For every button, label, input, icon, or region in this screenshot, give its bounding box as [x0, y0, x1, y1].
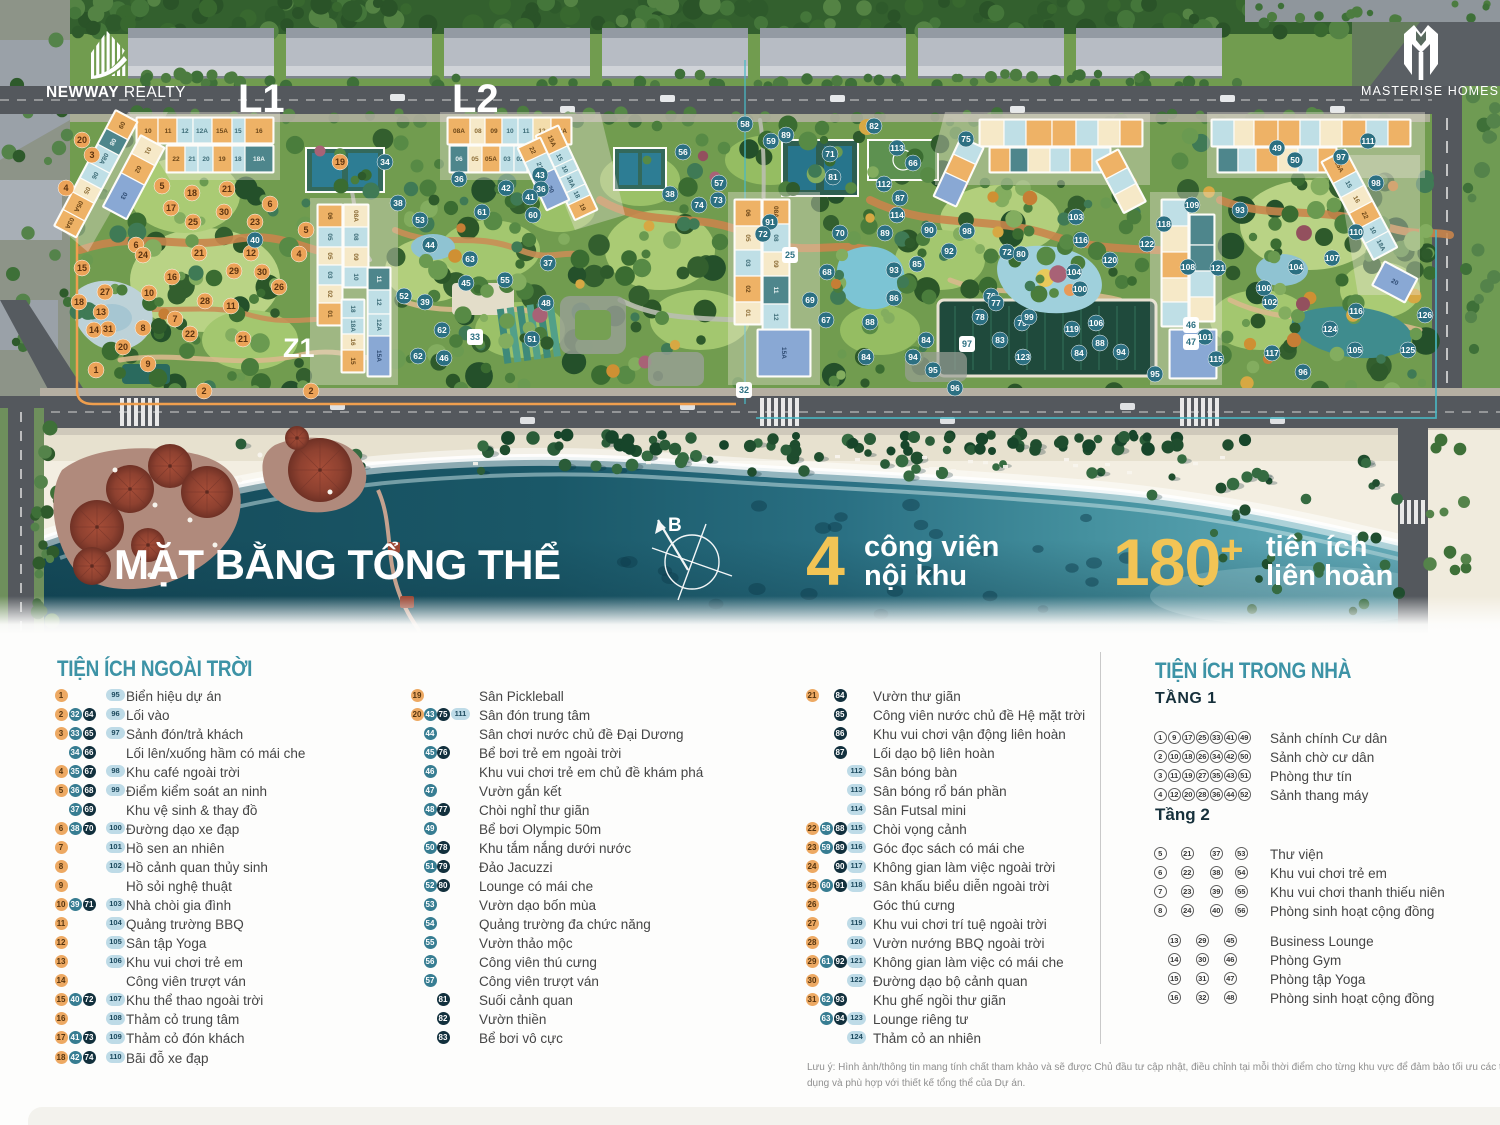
svg-text:12A: 12A [375, 319, 382, 331]
svg-text:95: 95 [1150, 369, 1160, 379]
svg-text:46: 46 [1186, 320, 1196, 330]
svg-text:46: 46 [439, 353, 449, 363]
svg-text:97: 97 [962, 339, 972, 349]
svg-text:57: 57 [714, 178, 724, 188]
svg-text:25: 25 [188, 217, 198, 227]
svg-text:03: 03 [503, 156, 511, 163]
svg-text:7: 7 [172, 314, 177, 324]
svg-text:4: 4 [806, 522, 845, 600]
svg-text:4: 4 [296, 249, 301, 259]
svg-text:38: 38 [393, 198, 403, 208]
svg-text:85: 85 [912, 259, 922, 269]
svg-text:2: 2 [308, 386, 313, 396]
svg-text:116: 116 [1349, 306, 1363, 316]
svg-text:73: 73 [713, 195, 723, 205]
svg-text:36: 36 [454, 174, 464, 184]
svg-text:14: 14 [89, 325, 99, 335]
svg-text:53: 53 [415, 215, 425, 225]
svg-text:30: 30 [219, 207, 229, 217]
svg-text:15: 15 [77, 263, 87, 273]
svg-text:03: 03 [326, 271, 333, 279]
svg-text:17: 17 [166, 203, 176, 213]
svg-text:49: 49 [1272, 143, 1282, 153]
svg-text:58: 58 [740, 119, 750, 129]
svg-text:22: 22 [172, 156, 180, 163]
svg-text:1: 1 [93, 365, 98, 375]
svg-text:18A: 18A [349, 320, 356, 332]
svg-text:03: 03 [744, 259, 751, 267]
svg-text:96: 96 [1298, 367, 1308, 377]
svg-text:11: 11 [523, 128, 530, 135]
svg-text:09: 09 [490, 128, 498, 135]
svg-text:72: 72 [1002, 247, 1012, 257]
svg-text:05: 05 [326, 252, 333, 260]
svg-text:37: 37 [543, 258, 553, 268]
svg-text:21: 21 [238, 334, 248, 344]
svg-text:Z1: Z1 [283, 333, 315, 363]
svg-text:60: 60 [528, 210, 538, 220]
svg-text:110: 110 [1349, 227, 1363, 237]
svg-text:70: 70 [835, 228, 845, 238]
svg-text:16: 16 [349, 338, 356, 346]
svg-text:118: 118 [1157, 219, 1171, 229]
svg-text:18: 18 [349, 305, 356, 313]
svg-text:05: 05 [744, 234, 751, 242]
svg-text:100: 100 [1073, 284, 1087, 294]
svg-text:59: 59 [766, 136, 776, 146]
svg-text:02: 02 [744, 285, 751, 293]
svg-text:119: 119 [1065, 324, 1079, 334]
svg-text:08: 08 [352, 233, 359, 241]
svg-text:32: 32 [739, 385, 749, 395]
svg-text:51: 51 [527, 334, 537, 344]
svg-text:56: 56 [678, 147, 688, 157]
svg-text:126: 126 [1418, 310, 1432, 320]
svg-text:108: 108 [1181, 262, 1195, 272]
svg-text:05: 05 [471, 156, 479, 163]
svg-text:01: 01 [326, 310, 333, 318]
svg-text:122: 122 [1140, 239, 1154, 249]
svg-text:NEWWAY REALTY: NEWWAY REALTY [46, 84, 186, 101]
svg-text:05: 05 [326, 233, 333, 241]
svg-text:08: 08 [474, 128, 482, 135]
svg-text:19: 19 [218, 156, 226, 163]
svg-text:MẶT BẰNG TỔNG THỂ: MẶT BẰNG TỔNG THỂ [114, 539, 560, 588]
svg-text:12: 12 [772, 313, 779, 321]
svg-text:06: 06 [455, 156, 463, 163]
svg-text:10: 10 [144, 288, 154, 298]
svg-text:20: 20 [77, 135, 87, 145]
svg-text:93: 93 [1235, 205, 1245, 215]
svg-text:95: 95 [928, 365, 938, 375]
svg-text:20: 20 [118, 342, 128, 352]
svg-text:98: 98 [962, 226, 972, 236]
svg-text:01: 01 [744, 309, 751, 317]
svg-text:113: 113 [890, 143, 904, 153]
svg-text:25: 25 [785, 250, 795, 260]
svg-text:18: 18 [74, 297, 84, 307]
svg-text:101: 101 [1198, 332, 1212, 342]
svg-text:MASTERISE HOMES: MASTERISE HOMES [1361, 84, 1499, 98]
svg-text:55: 55 [500, 275, 510, 285]
svg-text:06: 06 [744, 209, 751, 217]
svg-text:26: 26 [274, 282, 284, 292]
svg-text:124: 124 [1323, 324, 1337, 334]
svg-text:89: 89 [880, 228, 890, 238]
svg-text:81: 81 [828, 172, 838, 182]
svg-text:15: 15 [234, 128, 242, 135]
svg-text:15A: 15A [780, 347, 787, 359]
svg-text:9: 9 [145, 359, 150, 369]
svg-text:34: 34 [380, 157, 390, 167]
svg-text:11: 11 [226, 301, 236, 311]
svg-text:115: 115 [1209, 354, 1223, 364]
svg-text:75: 75 [961, 134, 971, 144]
svg-text:5: 5 [159, 181, 164, 191]
svg-text:100: 100 [1257, 283, 1271, 293]
svg-text:84: 84 [1074, 348, 1084, 358]
svg-text:40: 40 [250, 235, 260, 245]
svg-text:98: 98 [1371, 178, 1381, 188]
svg-text:94: 94 [1116, 347, 1126, 357]
svg-text:31: 31 [103, 324, 113, 334]
svg-text:88: 88 [865, 317, 875, 327]
svg-text:nội khu: nội khu [864, 560, 967, 592]
svg-text:66: 66 [908, 158, 918, 168]
svg-text:05A: 05A [485, 156, 497, 163]
svg-text:114: 114 [890, 210, 904, 220]
svg-text:2: 2 [201, 386, 206, 396]
svg-text:08A: 08A [352, 210, 359, 222]
svg-text:69: 69 [805, 295, 815, 305]
svg-text:12: 12 [375, 298, 382, 306]
svg-text:18: 18 [187, 188, 197, 198]
svg-text:106: 106 [1089, 318, 1103, 328]
svg-text:82: 82 [869, 121, 879, 131]
svg-text:109: 109 [1185, 200, 1199, 210]
svg-text:86: 86 [889, 293, 899, 303]
svg-text:102: 102 [1263, 297, 1277, 307]
svg-text:12: 12 [181, 128, 189, 135]
svg-text:11: 11 [375, 276, 382, 283]
svg-text:103: 103 [1069, 212, 1083, 222]
svg-text:liên hoàn: liên hoàn [1266, 560, 1393, 592]
svg-text:33: 33 [470, 332, 480, 342]
svg-text:02: 02 [326, 290, 333, 298]
svg-text:39: 39 [420, 297, 430, 307]
svg-text:44: 44 [425, 240, 435, 250]
svg-text:50: 50 [1290, 155, 1300, 165]
svg-text:62: 62 [437, 325, 447, 335]
svg-text:8: 8 [140, 323, 145, 333]
svg-text:10: 10 [506, 128, 514, 135]
svg-text:94: 94 [908, 352, 918, 362]
svg-text:08A: 08A [453, 128, 465, 135]
svg-text:18A: 18A [253, 156, 265, 163]
svg-text:06: 06 [326, 212, 333, 220]
svg-text:63: 63 [465, 254, 475, 264]
svg-text:21: 21 [194, 248, 204, 258]
svg-text:61: 61 [477, 207, 487, 217]
svg-text:27: 27 [100, 287, 110, 297]
svg-text:16: 16 [167, 272, 177, 282]
svg-text:80: 80 [1016, 249, 1026, 259]
svg-text:L2: L2 [452, 77, 499, 121]
svg-text:96: 96 [950, 383, 960, 393]
svg-text:6: 6 [267, 199, 272, 209]
svg-text:tiên ích: tiên ích [1266, 531, 1368, 563]
svg-text:47: 47 [1186, 337, 1196, 347]
svg-text:5: 5 [303, 225, 308, 235]
svg-text:45: 45 [461, 278, 471, 288]
svg-text:120: 120 [1103, 255, 1117, 265]
svg-text:42: 42 [501, 183, 511, 193]
svg-text:104: 104 [1067, 267, 1081, 277]
svg-text:84: 84 [861, 352, 871, 362]
svg-text:24: 24 [138, 250, 148, 260]
svg-text:123: 123 [1016, 352, 1030, 362]
svg-text:68: 68 [822, 267, 832, 277]
svg-text:62: 62 [413, 351, 423, 361]
svg-text:L1: L1 [238, 77, 285, 121]
svg-text:19: 19 [335, 157, 345, 167]
svg-text:11: 11 [772, 287, 779, 294]
svg-text:21: 21 [222, 184, 232, 194]
svg-text:72: 72 [758, 229, 768, 239]
svg-text:12: 12 [246, 248, 256, 258]
svg-text:90: 90 [924, 225, 934, 235]
svg-text:B: B [668, 515, 682, 536]
svg-text:4: 4 [63, 183, 68, 193]
svg-text:công viên: công viên [864, 531, 999, 563]
svg-text:38: 38 [665, 189, 675, 199]
svg-text:6: 6 [133, 240, 138, 250]
svg-text:121: 121 [1211, 263, 1225, 273]
svg-text:105: 105 [1348, 345, 1362, 355]
svg-text:09: 09 [352, 253, 359, 261]
svg-text:116: 116 [1074, 235, 1088, 245]
svg-text:125: 125 [1401, 345, 1415, 355]
svg-text:15: 15 [349, 357, 356, 365]
svg-text:117: 117 [1265, 348, 1279, 358]
svg-text:30: 30 [257, 267, 267, 277]
svg-text:92: 92 [944, 246, 954, 256]
svg-text:15A: 15A [375, 350, 382, 362]
svg-text:09: 09 [772, 260, 779, 268]
svg-text:43: 43 [535, 170, 545, 180]
svg-text:29: 29 [229, 266, 239, 276]
svg-text:93: 93 [889, 265, 899, 275]
svg-text:15A: 15A [216, 128, 228, 135]
svg-text:11: 11 [165, 128, 172, 135]
svg-text:104: 104 [1289, 262, 1303, 272]
svg-text:67: 67 [821, 315, 831, 325]
svg-text:78: 78 [975, 312, 985, 322]
svg-text:88: 88 [1095, 338, 1105, 348]
svg-text:87: 87 [895, 193, 905, 203]
svg-text:12A: 12A [196, 128, 208, 135]
svg-text:107: 107 [1325, 253, 1339, 263]
svg-text:99: 99 [1024, 312, 1034, 322]
svg-text:91: 91 [765, 217, 775, 227]
svg-text:10: 10 [352, 273, 359, 281]
svg-text:28: 28 [200, 296, 210, 306]
svg-text:52: 52 [399, 291, 409, 301]
svg-text:74: 74 [694, 200, 704, 210]
svg-text:22: 22 [185, 329, 195, 339]
svg-text:89: 89 [781, 130, 791, 140]
svg-text:71: 71 [825, 149, 835, 159]
svg-text:97: 97 [1336, 152, 1346, 162]
svg-text:36: 36 [536, 184, 546, 194]
svg-text:41: 41 [525, 192, 535, 202]
svg-text:83: 83 [995, 335, 1005, 345]
svg-text:48: 48 [541, 298, 551, 308]
svg-text:23: 23 [250, 217, 260, 227]
svg-text:112: 112 [877, 179, 891, 189]
svg-text:16: 16 [255, 128, 263, 135]
svg-text:08: 08 [772, 234, 779, 242]
svg-text:77: 77 [991, 298, 1001, 308]
svg-text:111: 111 [1361, 136, 1375, 146]
svg-text:84: 84 [921, 335, 931, 345]
svg-text:10: 10 [144, 128, 152, 135]
svg-text:18: 18 [234, 156, 242, 163]
svg-text:21: 21 [188, 156, 196, 163]
svg-text:13: 13 [96, 307, 106, 317]
svg-text:3: 3 [89, 150, 94, 160]
svg-text:20: 20 [202, 156, 210, 163]
